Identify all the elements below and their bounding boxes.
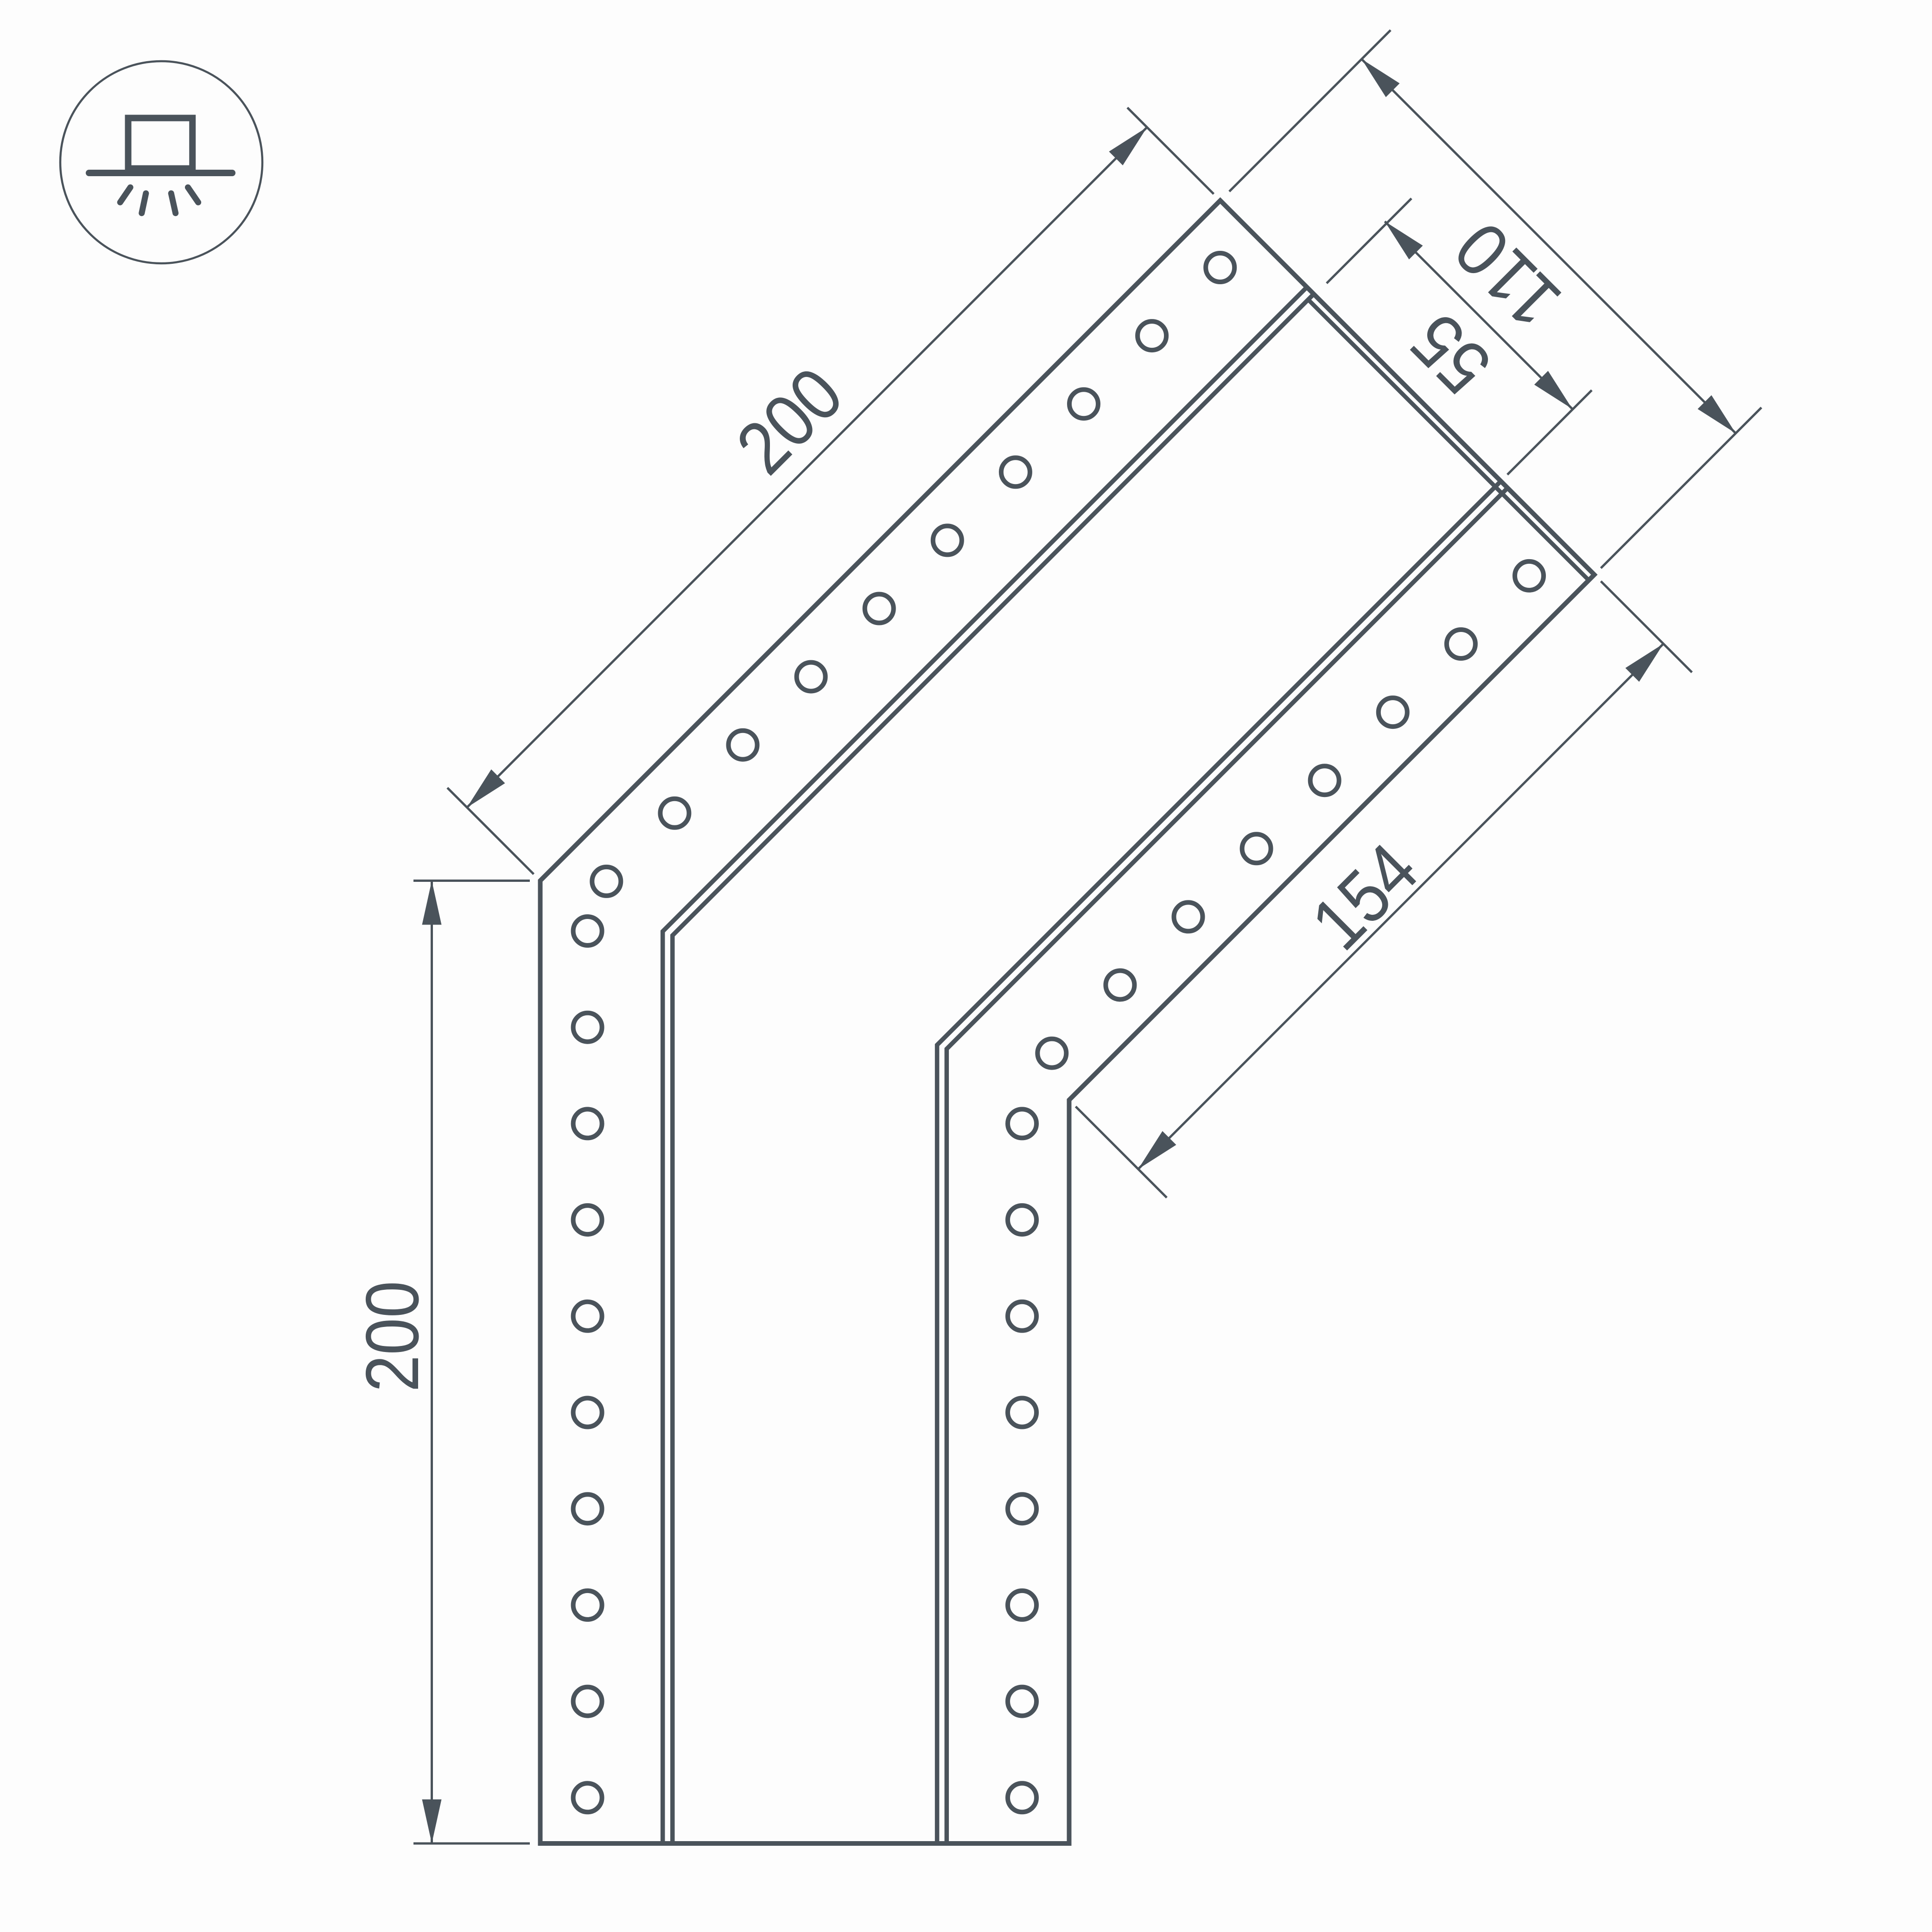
svg-text:200: 200	[350, 1281, 434, 1392]
